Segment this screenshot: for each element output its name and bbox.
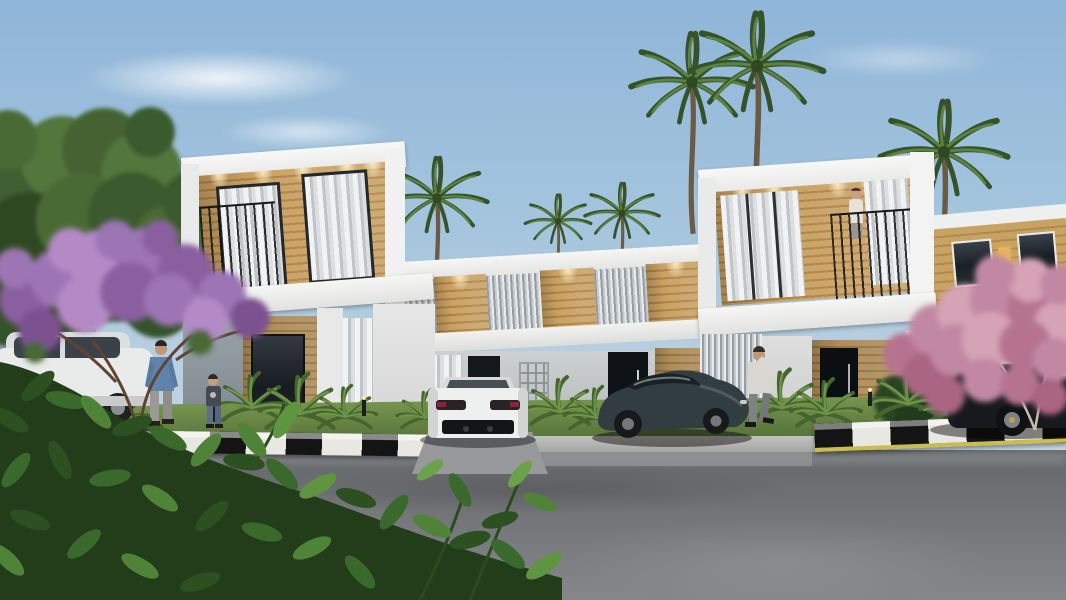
foreground-bush bbox=[0, 0, 1066, 600]
architectural-render-scene bbox=[0, 0, 1066, 600]
